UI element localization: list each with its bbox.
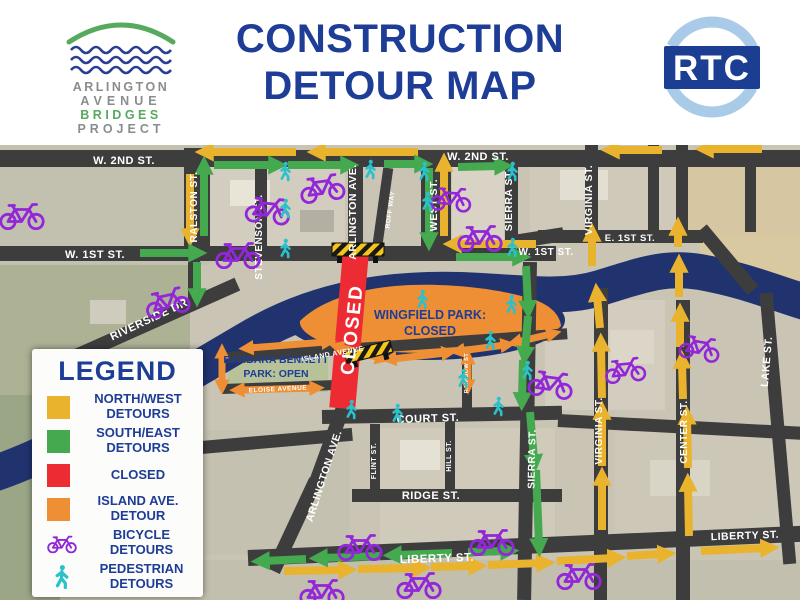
legend-item-label: BICYCLE DETOURS xyxy=(85,528,198,557)
street-label-hill: HILL ST. xyxy=(446,440,453,471)
legend-item-southeast: SOUTH/EAST DETOURS xyxy=(37,426,198,456)
closed-swatch xyxy=(47,464,70,487)
street-label-virginia-n: VIRGINIA ST. xyxy=(583,165,595,235)
street-label-flint: FLINT ST. xyxy=(371,443,378,479)
legend: LEGEND NORTH/WEST DETOURS SOUTH/EAST DET… xyxy=(32,349,203,597)
rtc-label: RTC xyxy=(673,49,751,88)
page-title: CONSTRUCTION DETOUR MAP xyxy=(190,16,610,110)
street-label-w1st-b: W. 1ST ST. xyxy=(518,247,573,258)
logo-line-1: ARLINGTON xyxy=(73,80,170,94)
rtc-logo: RTC xyxy=(650,8,776,128)
logo-line-2: AVENUE xyxy=(80,94,161,108)
legend-item-label: ISLAND AVE. DETOUR xyxy=(78,494,198,523)
arlington-bridges-logo: ARLINGTON AVENUE BRIDGES PROJECT xyxy=(55,6,187,138)
street-label-center: CENTER ST. xyxy=(679,400,690,463)
street-label-w2nd-a: W. 2ND ST. xyxy=(93,155,155,167)
bicycle-icon xyxy=(47,533,77,554)
logo-line-3: BRIDGES xyxy=(80,108,161,122)
island-swatch xyxy=(47,498,70,521)
street-label-ridge: RIDGE ST. xyxy=(402,490,460,502)
page: ARLINGTON AVENUE BRIDGES PROJECT CONSTRU… xyxy=(0,0,800,600)
wingfield-park-label-1: WINGFIELD PARK: xyxy=(374,308,486,322)
street-label-w2nd-b: W. 2ND ST. xyxy=(447,151,509,163)
legend-item-pedestrian: PEDESTRIAN DETOURS xyxy=(37,562,198,592)
legend-item-closed: CLOSED xyxy=(37,460,198,490)
street-label-arlington-n: ARLINGTON AVE. xyxy=(347,164,359,259)
water-waves-icon xyxy=(71,47,171,73)
southeast-swatch xyxy=(47,430,70,453)
street-label-court: COURT ST. xyxy=(396,412,459,426)
legend-item-bicycle: BICYCLE DETOURS xyxy=(37,528,198,558)
legend-item-northwest: NORTH/WEST DETOURS xyxy=(37,392,198,422)
header: ARLINGTON AVENUE BRIDGES PROJECT CONSTRU… xyxy=(0,0,800,145)
barbara-bennett-label-2: PARK: OPEN xyxy=(243,368,308,380)
northwest-swatch xyxy=(47,396,70,419)
legend-item-island: ISLAND AVE. DETOUR xyxy=(37,494,198,524)
legend-item-label: CLOSED xyxy=(78,468,198,483)
street-label-liberty-b: LIBERTY ST. xyxy=(711,529,780,543)
street-label-ralston: RALSTON ST. xyxy=(189,172,200,243)
street-label-virginia-s: VIRGINIA ST. xyxy=(594,397,605,464)
street-label-w1st-a: W. 1ST ST. xyxy=(65,249,125,261)
street-label-e1st: E. 1ST ST. xyxy=(605,233,655,244)
street-label-sierra-s: SIERRA ST. xyxy=(526,429,538,489)
wingfield-park-label-2: CLOSED xyxy=(404,324,456,338)
logo-line-4: PROJECT xyxy=(77,122,164,136)
legend-title: LEGEND xyxy=(37,356,198,387)
legend-item-label: SOUTH/EAST DETOURS xyxy=(78,426,198,455)
legend-item-label: NORTH/WEST DETOURS xyxy=(78,392,198,421)
bridge-arch-icon xyxy=(69,25,173,42)
legend-item-label: PEDESTRIAN DETOURS xyxy=(85,562,198,591)
title-line-2: DETOUR MAP xyxy=(190,63,610,110)
pedestrian-icon xyxy=(54,564,70,590)
title-line-1: CONSTRUCTION xyxy=(190,16,610,63)
